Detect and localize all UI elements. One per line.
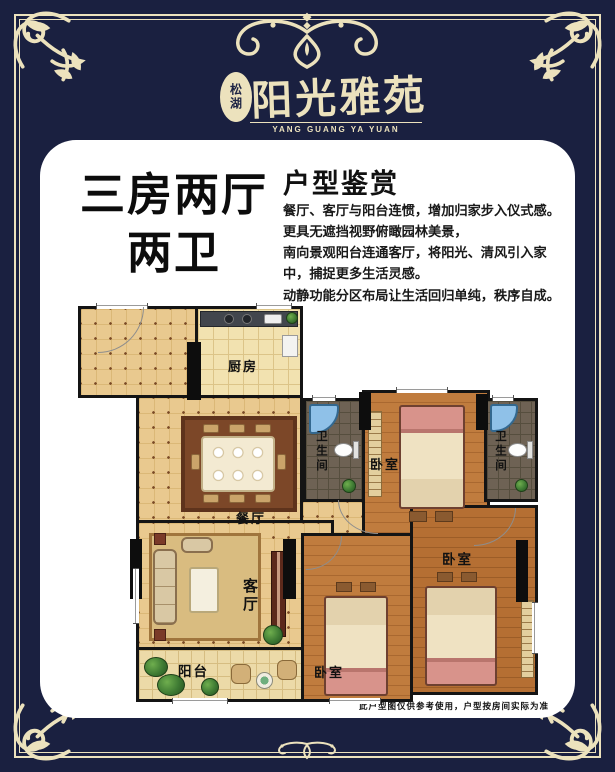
bed-bench — [360, 582, 376, 592]
section-heading: 户型鉴赏 — [283, 162, 563, 201]
dining-chair — [255, 494, 271, 503]
section-description: 餐厅、客厅与阳台连惯，增加归家步入仪式感。 更具无遮挡视野俯瞰园林美景， 南向景… — [283, 200, 567, 306]
poster: 松湖 阳光雅苑 YANG GUANG YA YUAN 三房两厅 两卫 户型鉴赏 … — [0, 0, 615, 772]
coffee-table — [189, 567, 219, 613]
window — [256, 303, 292, 309]
brand-name: 阳光雅苑 — [249, 61, 429, 127]
dining-chair — [229, 424, 245, 433]
stove-burner — [242, 314, 252, 324]
bed-bench — [435, 511, 453, 522]
headline-line-1: 三房两厅 — [58, 166, 290, 224]
room-label-kitchen: 厨房 — [228, 356, 258, 375]
armchair — [181, 537, 213, 553]
room-label-bathroom-left: 卫生间 — [313, 430, 329, 474]
window — [396, 387, 448, 393]
corner-ornament-top-right-icon — [515, 6, 607, 98]
disclaimer-text: 此户型图仅供参考使用，户型按房间实际为准 — [359, 700, 549, 712]
window — [492, 395, 514, 401]
plant — [286, 312, 298, 324]
sofa — [153, 549, 177, 625]
description-line: 餐厅、客厅与阳台连惯，增加归家步入仪式感。 — [283, 200, 567, 221]
toilet — [334, 443, 353, 457]
description-line: 南向景观阳台连通客厅，将阳光、清风引入家 — [283, 242, 567, 263]
wall-segment — [187, 342, 201, 400]
dining-chair — [203, 494, 219, 503]
kitchen-sink — [264, 314, 282, 324]
bed — [399, 405, 465, 509]
dining-chair — [255, 424, 271, 433]
brand-badge: 松湖 — [220, 72, 252, 122]
toilet — [508, 443, 527, 457]
bed-bench — [336, 582, 352, 592]
description-line: 更具无遮挡视野俯瞰园林美景， — [283, 221, 567, 242]
window — [329, 698, 381, 704]
room-kitchen — [195, 306, 303, 398]
balcony-chair — [277, 660, 297, 680]
room-label-bedroom-bottom: 卧室 — [314, 662, 344, 681]
window — [532, 602, 538, 654]
room-label-bedroom-right: 卧室 — [442, 548, 473, 568]
wall-segment — [283, 539, 296, 599]
side-table — [154, 629, 166, 641]
window — [133, 568, 139, 624]
plant — [201, 678, 219, 696]
room-label-balcony: 阳台 — [178, 660, 209, 680]
bed-bench — [409, 511, 427, 522]
wall-segment — [516, 540, 528, 602]
dining-chair — [277, 454, 286, 470]
brand-name-en: YANG GUANG YA YUAN — [250, 122, 422, 134]
plant — [342, 479, 356, 493]
fridge — [282, 335, 298, 357]
headline-line-2: 两卫 — [58, 224, 290, 282]
room-label-bedroom-top: 卧室 — [370, 454, 400, 473]
window — [172, 698, 228, 704]
room-label-bathroom-right: 卫生间 — [492, 430, 508, 474]
bottom-center-ornament-icon — [272, 740, 342, 760]
room-label-living: 客厅 — [239, 578, 260, 614]
balcony-chair — [231, 664, 251, 684]
wall-segment — [476, 394, 488, 430]
bed-bench — [437, 572, 453, 582]
bed — [324, 596, 388, 696]
dining-chair — [203, 424, 219, 433]
toilet-tank — [527, 441, 533, 459]
wall-segment — [359, 392, 371, 430]
content-card: 三房两厅 两卫 户型鉴赏 餐厅、客厅与阳台连惯，增加归家步入仪式感。 更具无遮挡… — [40, 140, 575, 718]
shower — [490, 404, 518, 432]
floorplan: 厨房 餐厅 — [76, 302, 538, 704]
bed — [425, 586, 497, 686]
room-dining — [136, 395, 303, 533]
description-line: 中，捕捉更多生活灵感。 — [283, 263, 567, 284]
stove-burner — [224, 314, 234, 324]
dining-chair — [191, 454, 200, 470]
toilet-tank — [353, 441, 359, 459]
bed-bench — [461, 572, 477, 582]
plant — [263, 625, 283, 645]
room-label-dining: 餐厅 — [236, 508, 266, 527]
dining-chair — [229, 494, 245, 503]
headline: 三房两厅 两卫 — [58, 166, 290, 281]
corner-ornament-top-left-icon — [8, 6, 100, 98]
side-table — [154, 533, 166, 545]
plant — [515, 479, 528, 492]
top-center-ornament-icon — [227, 12, 387, 70]
dining-table — [201, 436, 275, 492]
brand-badge-text: 松湖 — [228, 83, 245, 111]
balcony-table — [256, 672, 273, 689]
window — [312, 395, 336, 401]
